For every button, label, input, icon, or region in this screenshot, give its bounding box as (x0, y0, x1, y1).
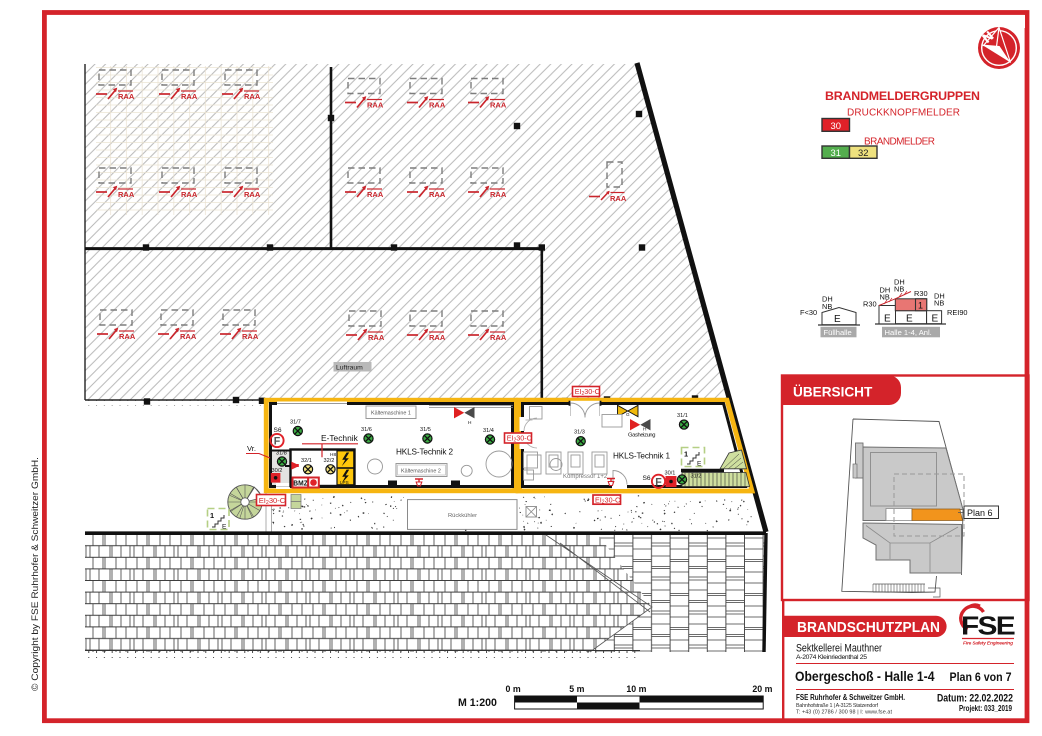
svg-text:Gasheizung: Gasheizung (628, 432, 656, 438)
svg-text:E: E (906, 314, 913, 325)
svg-text:EI230-C: EI230-C (575, 387, 600, 397)
svg-text:31: 31 (831, 147, 841, 158)
svg-text:E: E (884, 314, 891, 325)
svg-text:30/1: 30/1 (665, 471, 676, 477)
svg-text:NB: NB (822, 302, 832, 311)
svg-text:31/7: 31/7 (290, 420, 301, 426)
svg-text:30/2: 30/2 (272, 468, 283, 474)
svg-text:G: G (626, 412, 630, 417)
svg-text:E: E (697, 461, 702, 468)
svg-text:1: 1 (210, 511, 214, 520)
svg-text:R30: R30 (863, 300, 877, 309)
svg-text:31/5: 31/5 (420, 427, 431, 433)
svg-text:Obergeschoß - Halle 1-4: Obergeschoß - Halle 1-4 (795, 668, 935, 684)
svg-text:HKLS-Technik 1: HKLS-Technik 1 (613, 452, 670, 461)
svg-text:DRUCKKNOPFMELDER: DRUCKKNOPFMELDER (847, 108, 960, 119)
svg-text:NB: NB (934, 299, 944, 308)
svg-text:Fire Safety Engineering: Fire Safety Engineering (963, 641, 1013, 647)
svg-text:31/3: 31/3 (574, 430, 585, 436)
svg-text:Vr.: Vr. (247, 444, 256, 453)
svg-text:F: F (655, 476, 662, 488)
svg-text:Kältemaschine 1: Kältemaschine 1 (371, 411, 411, 417)
svg-text:F<30: F<30 (800, 308, 817, 317)
svg-text:M 1:200: M 1:200 (458, 697, 497, 709)
svg-text:31/6: 31/6 (361, 427, 372, 433)
svg-text:RAA: RAA (610, 194, 627, 203)
svg-text:0 m: 0 m (506, 684, 521, 694)
svg-text:Plan 6: Plan 6 (967, 508, 993, 518)
svg-text:BRANDSCHUTZPLAN: BRANDSCHUTZPLAN (797, 619, 940, 636)
svg-text:32: 32 (858, 147, 868, 158)
svg-text:FSE Ruhrhofer & Schweitzer Gm: FSE Ruhrhofer & Schweitzer GmbH. (796, 693, 905, 702)
svg-text:HKLS-Technik 2: HKLS-Technik 2 (396, 448, 453, 457)
svg-text:A-2074 Kleinriedenthal 25: A-2074 Kleinriedenthal 25 (796, 654, 867, 661)
svg-text:S6: S6 (643, 475, 651, 482)
svg-text:Kältemaschine 2: Kältemaschine 2 (401, 468, 441, 474)
svg-text:NB: NB (880, 293, 890, 302)
svg-text:F: F (274, 436, 281, 448)
svg-text:Projekt: 033_2019: Projekt: 033_2019 (959, 703, 1012, 713)
svg-text:EI230-C: EI230-C (595, 495, 620, 505)
svg-text:BRANDMELDERGRUPPEN: BRANDMELDERGRUPPEN (825, 89, 980, 103)
svg-text:Halle 1-4, Anl.: Halle 1-4, Anl. (885, 328, 932, 337)
svg-text:E: E (834, 314, 841, 325)
svg-text:EI230-C: EI230-C (507, 434, 532, 444)
svg-text:Luftraum: Luftraum (336, 365, 363, 372)
svg-text:© Copyright by FSE Ruhrhofer &: © Copyright by FSE Ruhrhofer & Schweitze… (30, 457, 40, 691)
svg-text:5 m: 5 m (569, 684, 584, 694)
svg-text:H: H (468, 420, 472, 426)
svg-text:1: 1 (918, 301, 923, 311)
svg-text:Bahnhofstraße 1 | A-3125 S: Bahnhofstraße 1 | A-3125 Statzendorf (796, 703, 879, 709)
svg-text:ÜBERSICHT: ÜBERSICHT (793, 385, 873, 400)
svg-text:32/2: 32/2 (324, 458, 335, 464)
svg-text:Plan 6 von 7: Plan 6 von 7 (950, 670, 1012, 684)
svg-text:Sektkellerei Mauthner: Sektkellerei Mauthner (796, 643, 882, 655)
svg-text:31/2: 31/2 (691, 474, 702, 480)
svg-text:30: 30 (831, 120, 841, 131)
svg-text:31/8: 31/8 (276, 451, 287, 457)
svg-text:20 m: 20 m (752, 684, 772, 694)
svg-text:R30: R30 (914, 289, 928, 298)
svg-text:31/1: 31/1 (677, 413, 688, 419)
svg-text:31/4: 31/4 (483, 428, 494, 434)
svg-text:E-Technik: E-Technik (321, 433, 359, 443)
svg-text:BMZ: BMZ (293, 479, 308, 488)
svg-text:32/1: 32/1 (301, 458, 312, 464)
svg-text:EI230-C: EI230-C (259, 496, 286, 506)
svg-text:E: E (932, 314, 939, 325)
svg-text:10 m: 10 m (626, 684, 646, 694)
svg-text:REI90: REI90 (947, 308, 968, 317)
svg-text:LPS: LPS (340, 480, 349, 485)
svg-text:E: E (222, 524, 227, 531)
svg-text:S6: S6 (274, 427, 282, 434)
svg-text:Füllhalle: Füllhalle (824, 328, 852, 337)
svg-text:Rückkühler: Rückkühler (448, 513, 477, 519)
svg-text:FSE: FSE (961, 611, 1015, 641)
svg-text:NB: NB (894, 285, 904, 294)
svg-text:T: +43 (0) 2786 / 300 98 |: T: +43 (0) 2786 / 300 98 | I: www.fse.at (796, 710, 893, 716)
svg-text:Kompressor 1+2: Kompressor 1+2 (563, 474, 608, 480)
svg-text:1: 1 (684, 450, 688, 459)
